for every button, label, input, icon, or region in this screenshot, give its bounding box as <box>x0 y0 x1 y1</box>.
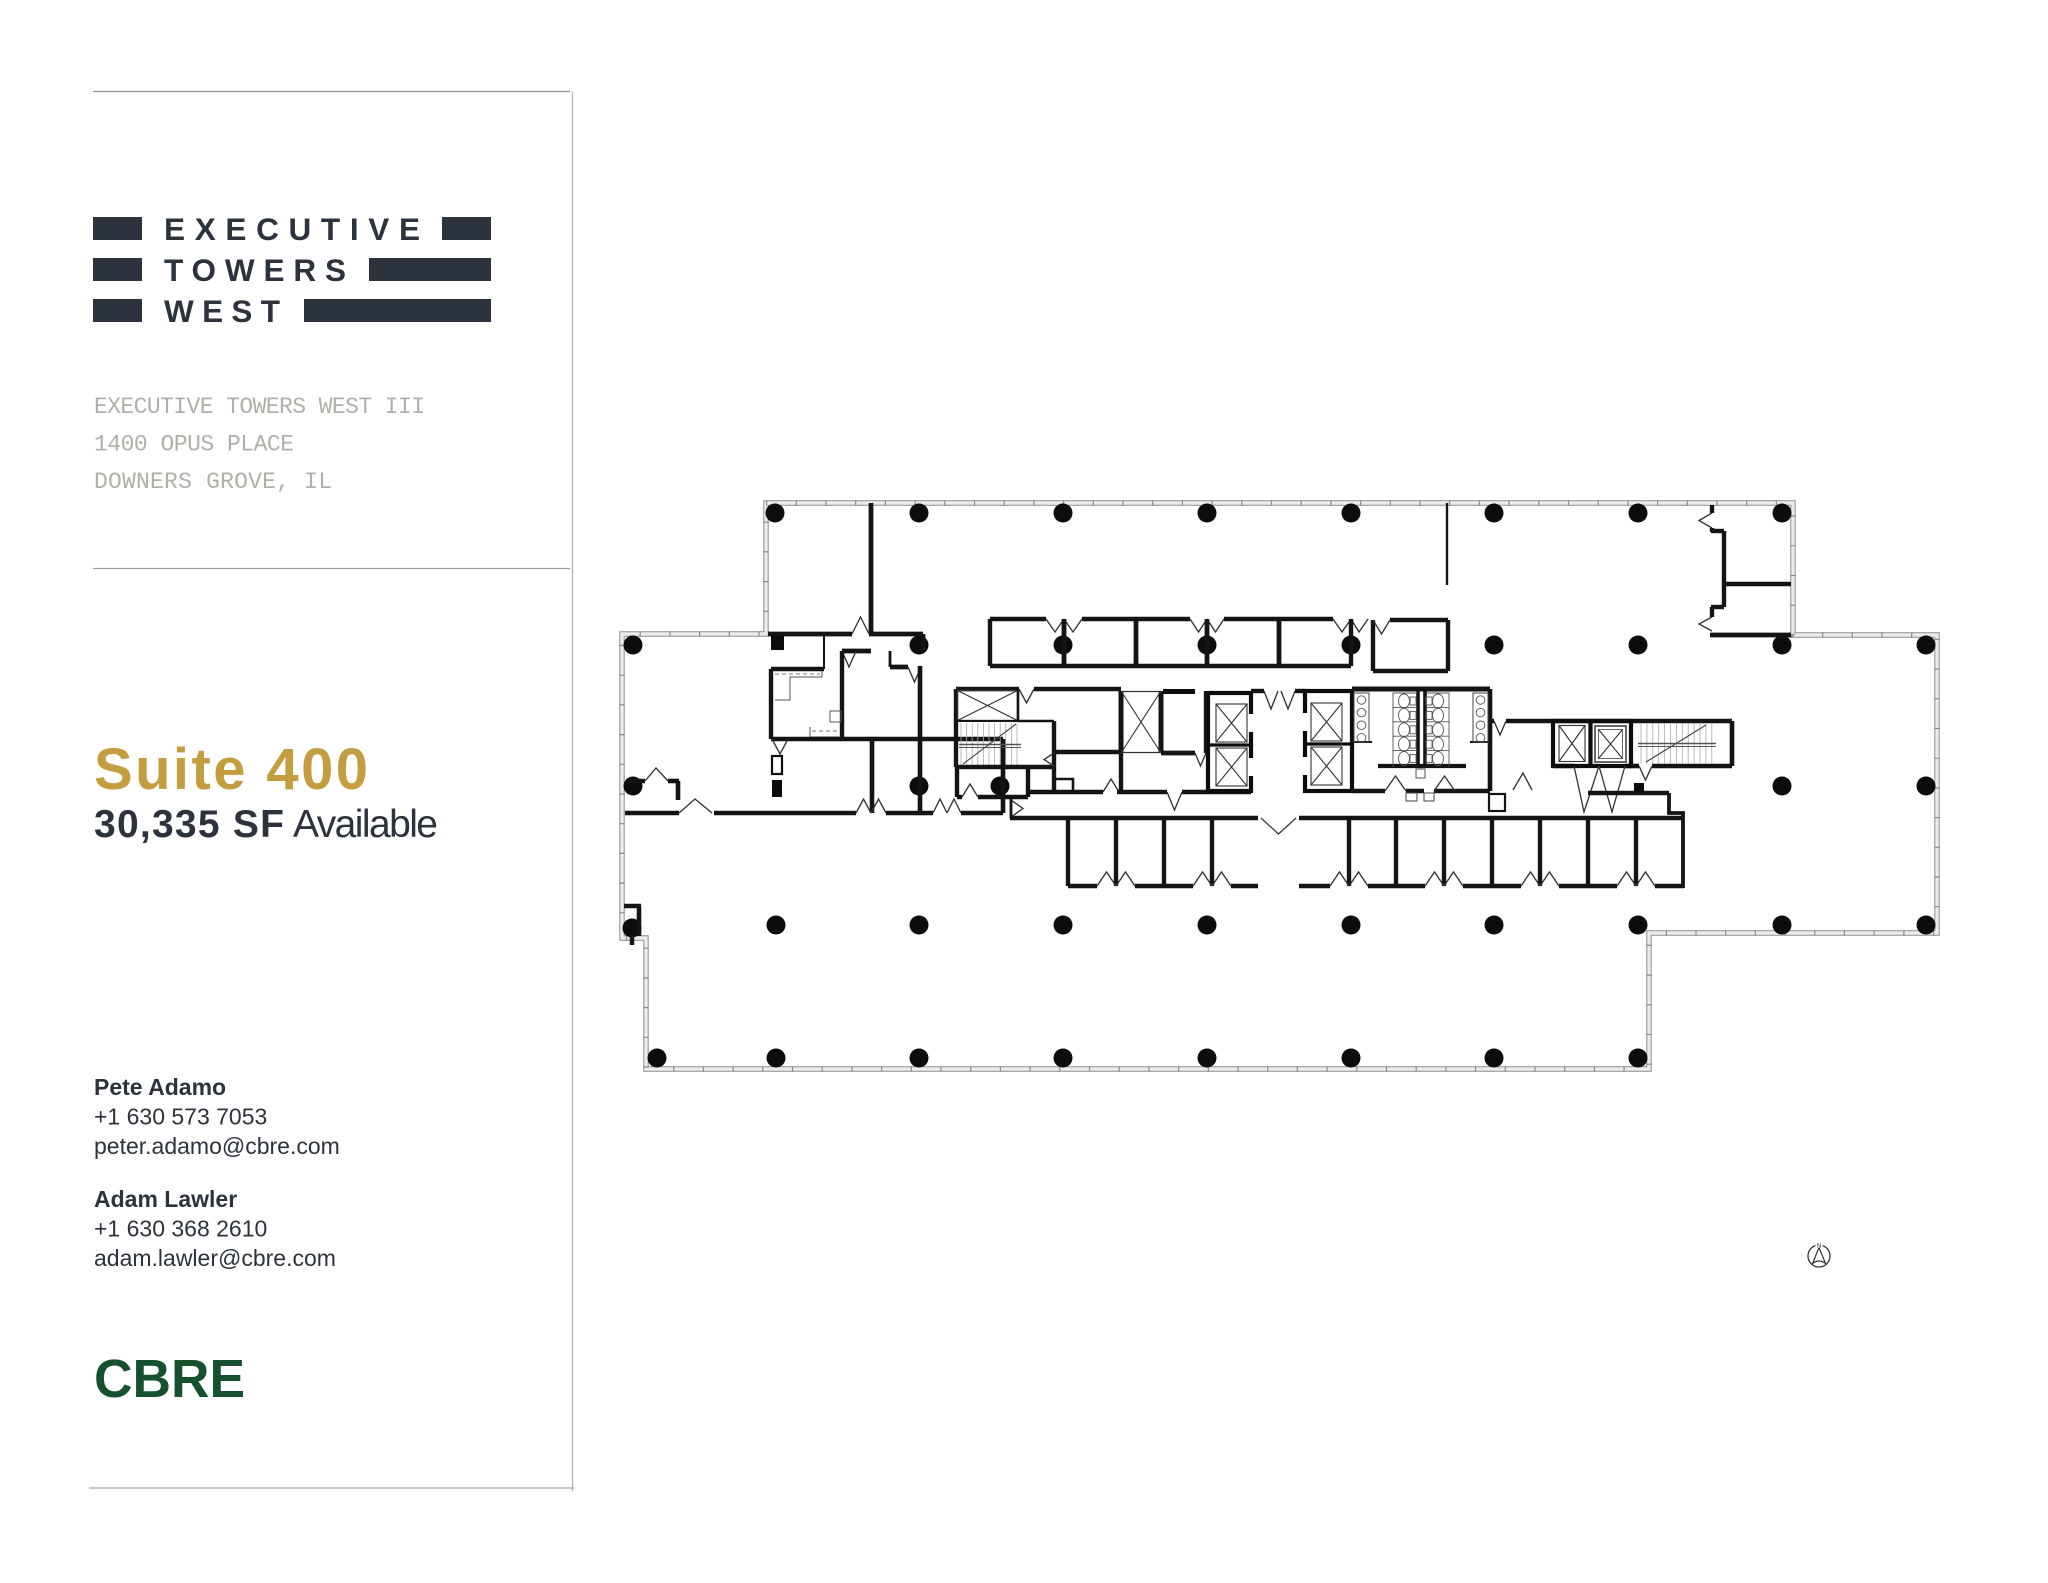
svg-text:30,335 SF: 30,335 SF <box>94 803 284 846</box>
svg-text:Adam Lawler: Adam Lawler <box>94 1186 237 1212</box>
svg-text:DOWNERS GROVE, IL: DOWNERS GROVE, IL <box>94 469 332 495</box>
svg-text:CBRE: CBRE <box>94 1349 245 1409</box>
svg-text:+1 630 573 7053: +1 630 573 7053 <box>94 1104 267 1130</box>
svg-text:EXECUTIVE TOWERS WEST III: EXECUTIVE TOWERS WEST III <box>94 394 425 420</box>
svg-text:+1 630 368 2610: +1 630 368 2610 <box>94 1216 267 1242</box>
svg-text:1400 OPUS PLACE: 1400 OPUS PLACE <box>94 432 294 458</box>
svg-text:WEST: WEST <box>164 293 280 329</box>
svg-text:EXECUTIVE: EXECUTIVE <box>164 211 420 247</box>
svg-text:peter.adamo@cbre.com: peter.adamo@cbre.com <box>94 1133 340 1159</box>
svg-text:Available: Available <box>293 803 438 846</box>
svg-text:Pete Adamo: Pete Adamo <box>94 1074 226 1100</box>
svg-text:N: N <box>1817 1243 1822 1250</box>
svg-text:Suite 400: Suite 400 <box>94 737 368 802</box>
svg-text:adam.lawler@cbre.com: adam.lawler@cbre.com <box>94 1245 336 1271</box>
